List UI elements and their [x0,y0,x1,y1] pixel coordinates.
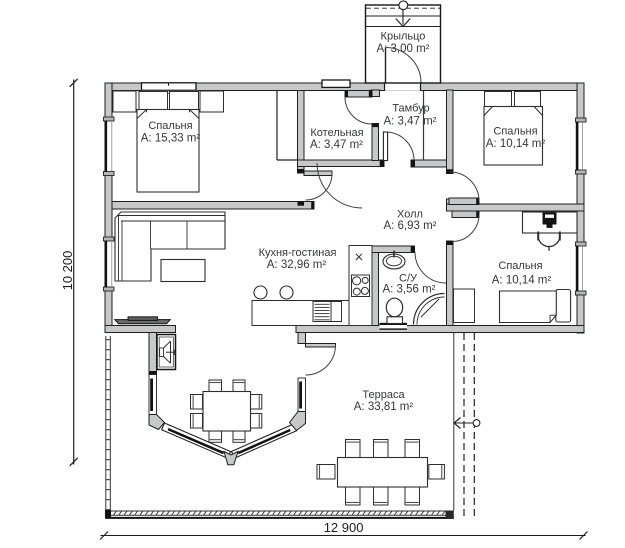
svg-text:А: 6,93 m²: А: 6,93 m² [383,220,436,232]
svg-text:Терраса: Терраса [362,389,405,401]
svg-text:Кухня-гостиная: Кухня-гостиная [259,247,337,259]
svg-text:А: 10,14 m²: А: 10,14 m² [486,138,546,150]
svg-text:Тамбур: Тамбур [392,103,429,115]
svg-text:А: 3,56 m²: А: 3,56 m² [382,284,435,296]
svg-text:А: 3,47 m²: А: 3,47 m² [383,116,436,128]
svg-text:Спальня: Спальня [498,260,542,272]
svg-text:Холл: Холл [397,209,423,221]
svg-text:Спальня: Спальня [493,126,537,138]
svg-text:А: 15,33 m²: А: 15,33 m² [141,133,201,145]
svg-text:А: 33,81 m²: А: 33,81 m² [354,401,414,413]
svg-text:Спальня: Спальня [148,120,192,132]
svg-text:С/У: С/У [399,272,418,284]
svg-text:10 200: 10 200 [60,251,75,291]
svg-text:А: 3,00 m²: А: 3,00 m² [376,43,429,55]
svg-text:Котельная: Котельная [310,127,363,139]
svg-text:А: 3,47 m²: А: 3,47 m² [310,139,363,151]
svg-text:А: 32,96 m²: А: 32,96 m² [267,259,327,271]
svg-text:А: 10,14 m²: А: 10,14 m² [492,275,552,287]
svg-text:12 900: 12 900 [324,520,364,535]
svg-text:Крыльцо: Крыльцо [381,30,426,42]
